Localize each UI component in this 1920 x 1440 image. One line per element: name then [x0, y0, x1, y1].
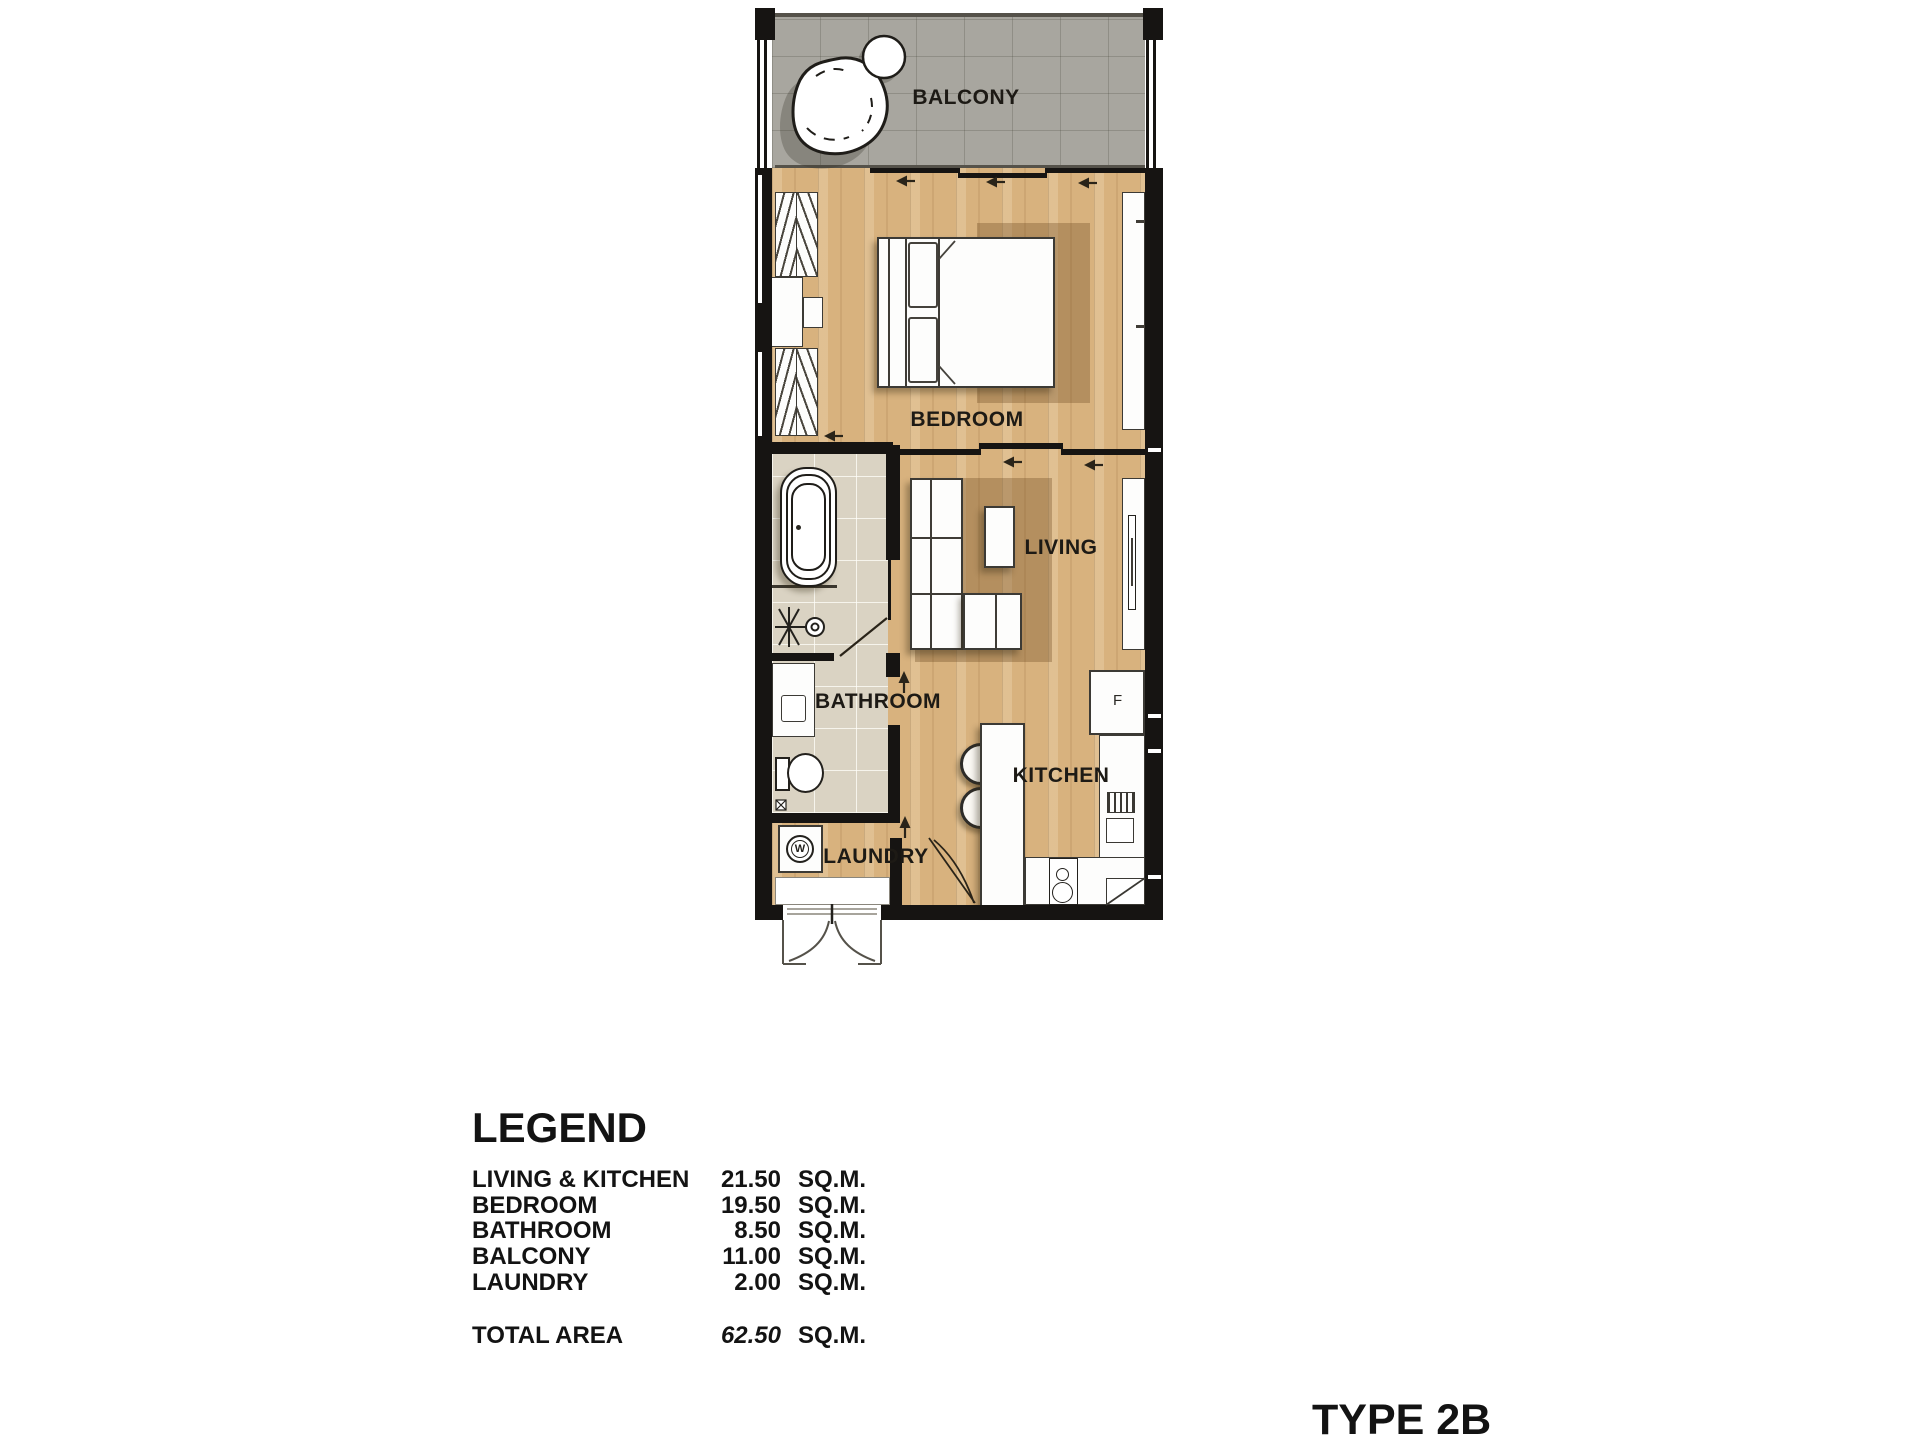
window-slit [758, 175, 762, 303]
coffee-table [984, 506, 1015, 568]
legend-unit: SQ.M. [798, 1167, 866, 1193]
wall-right [1145, 168, 1163, 920]
wardrobe-section [775, 348, 797, 436]
pillow [908, 242, 938, 308]
entry-bench [775, 877, 890, 905]
legend-value: 8.50 [709, 1218, 781, 1244]
legend-unit: SQ.M. [798, 1244, 866, 1270]
wall-post [755, 8, 775, 40]
wall-joint [1148, 714, 1161, 718]
balcony-rail [764, 40, 767, 168]
legend-total-unit: SQ.M. [798, 1322, 866, 1350]
bathroom-right-wall [886, 445, 900, 560]
legend-label: BATHROOM [472, 1218, 709, 1244]
dresser-knob-box [803, 297, 823, 328]
living-slider-panel [1061, 449, 1145, 455]
kitchen-island [980, 723, 1025, 908]
wall-joint [1148, 448, 1161, 452]
legend-unit: SQ.M. [798, 1218, 866, 1244]
room-label-bedroom: BEDROOM [910, 408, 1023, 432]
tv-line [1131, 538, 1133, 586]
balcony-rail [1146, 40, 1149, 168]
legend-value: 11.00 [709, 1244, 781, 1270]
corner-cabinet [1106, 878, 1145, 905]
legend-row: BEDROOM19.50SQ.M. [472, 1193, 866, 1219]
entry-threshold [783, 905, 881, 920]
wall-joint [1148, 749, 1161, 753]
legend-title: LEGEND [472, 1104, 647, 1152]
shower-glass [888, 560, 891, 620]
wardrobe-section [796, 192, 818, 277]
bathtub-drain [796, 525, 801, 530]
fridge-label: F [1113, 692, 1122, 709]
cabinet-shelf-tick [1136, 325, 1145, 328]
balcony-edge-line [775, 13, 1145, 17]
bed-headboard-line [888, 239, 890, 386]
sofa-cushion-line [912, 537, 961, 539]
wardrobe-section [775, 192, 797, 277]
legend-label: LIVING & KITCHEN [472, 1167, 709, 1193]
bed-mattress-line [938, 239, 940, 386]
cabinet-shelf-tick [1136, 220, 1145, 223]
legend: LIVING & KITCHEN21.50SQ.M. BEDROOM19.50S… [472, 1167, 866, 1296]
bedroom-wall-cabinet [1122, 192, 1145, 430]
burner-small [1056, 868, 1069, 881]
legend-unit: SQ.M. [798, 1270, 866, 1296]
wall-post [1143, 8, 1163, 40]
bed [877, 237, 1055, 388]
dishwasher [1106, 818, 1134, 843]
bed-headboard-line [905, 239, 907, 386]
washer-drum-inner: W [791, 840, 809, 858]
legend-label: BALCONY [472, 1244, 709, 1270]
legend-row: LAUNDRY2.00SQ.M. [472, 1270, 866, 1296]
burner-large [1052, 882, 1073, 903]
dish-rack [1107, 792, 1135, 813]
wardrobe-section [796, 348, 818, 436]
legend-value: 19.50 [709, 1193, 781, 1219]
bathroom-bottom-wall [768, 813, 900, 823]
room-label-laundry: LAUNDRY [823, 845, 928, 869]
wall-joint [1148, 875, 1161, 879]
legend-value: 21.50 [709, 1167, 781, 1193]
bathtub [780, 467, 837, 587]
legend-row: BALCONY11.00SQ.M. [472, 1244, 866, 1270]
bathroom-top-wall [768, 442, 893, 454]
living-slider-panel [893, 449, 981, 455]
sink-basin [781, 695, 806, 722]
unit-type-label: TYPE 2B [1312, 1396, 1491, 1440]
room-label-bathroom: BATHROOM [815, 690, 941, 714]
room-label-kitchen: KITCHEN [1013, 764, 1110, 788]
dresser [770, 277, 803, 347]
sofa-cushion-line [995, 595, 997, 648]
legend-label: BEDROOM [472, 1193, 709, 1219]
legend-label: LAUNDRY [472, 1270, 709, 1296]
bathroom-door-jamb [886, 653, 900, 677]
shower-divider-wall [768, 653, 834, 661]
pillow [908, 317, 938, 383]
washer-label: W [795, 843, 805, 855]
hall-wall [888, 725, 900, 815]
balcony-rail [1153, 40, 1156, 168]
balcony-slider-panel [1045, 168, 1145, 173]
sofa-chaise [963, 593, 1022, 650]
balcony-slider-panel [958, 173, 1047, 178]
living-slider-panel [979, 443, 1063, 449]
legend-total-value: 62.50 [709, 1322, 781, 1350]
legend-total-row: TOTAL AREA62.50SQ.M. [472, 1322, 866, 1350]
legend-unit: SQ.M. [798, 1193, 866, 1219]
legend-total-label: TOTAL AREA [472, 1322, 709, 1350]
sofa-main [910, 478, 963, 650]
legend-row: BATHROOM8.50SQ.M. [472, 1218, 866, 1244]
sofa-cushion-line [930, 480, 932, 648]
room-label-living: LIVING [1024, 536, 1097, 560]
floor-plan-page: F W [0, 0, 1920, 1440]
legend-value: 2.00 [709, 1270, 781, 1296]
window-slit [758, 352, 762, 436]
sofa-cushion-line [912, 593, 961, 595]
room-label-balcony: BALCONY [912, 86, 1019, 110]
toilet-bowl [787, 753, 824, 793]
balcony-rail [757, 40, 760, 168]
legend-row: LIVING & KITCHEN21.50SQ.M. [472, 1167, 866, 1193]
balcony-slider-panel [870, 168, 960, 173]
